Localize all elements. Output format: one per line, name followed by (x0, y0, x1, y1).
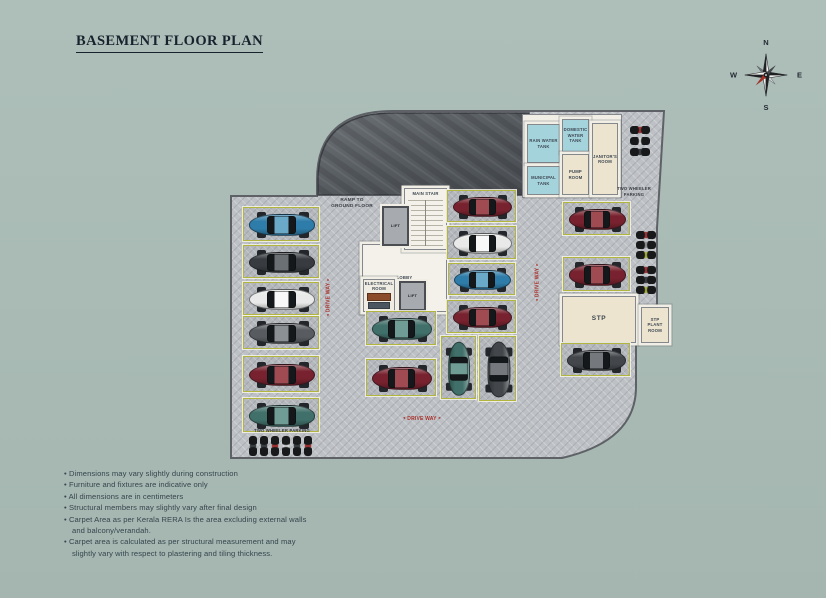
parking-stall (479, 336, 516, 401)
plan-label-two-wheeler-parking: TWO WHEELER PARKING (244, 428, 320, 434)
car-white (249, 289, 314, 309)
car-darkgray (249, 252, 314, 272)
arrow-right-icon: ► (535, 263, 539, 268)
room-stp-plant-room: STP PLANT ROOM (641, 307, 669, 343)
disclaimer-notes: Dimensions may vary slightly during cons… (64, 468, 316, 559)
motorcycle-icon (636, 251, 656, 259)
motorcycle-icon (636, 286, 656, 294)
motorcycle-icon (636, 231, 656, 239)
motorcycle-icon (293, 436, 301, 456)
parking-stall (561, 343, 630, 376)
room-label: LOBBY (397, 275, 413, 280)
arrow-left-icon: ◄ (326, 312, 330, 317)
car-charcoal (567, 350, 626, 370)
parking-stall (366, 311, 436, 345)
motorcycle-icon (630, 126, 650, 134)
room-label: PUMP ROOM (569, 169, 583, 180)
parking-stall (243, 207, 319, 241)
compass-west-label: W (730, 71, 737, 80)
compass-star-icon (742, 51, 790, 99)
room-rain-water-tank: RAIN WATER TANK (527, 124, 560, 163)
car-maroon (453, 307, 512, 327)
motorcycle-icon (636, 266, 656, 274)
room-label: RAIN WATER TANK (529, 138, 557, 149)
note-item: All dimensions are in centimeters (64, 491, 316, 502)
note-item: Furniture and fixtures are indicative on… (64, 479, 316, 490)
car-maroon (569, 264, 627, 285)
parking-stall (243, 245, 319, 278)
plan-label-drive-way: ◄ DRIVE WAY ► (326, 271, 333, 323)
parking-stall (448, 263, 515, 295)
room-pump-room: PUMP ROOM (562, 154, 589, 195)
room-stp: STP (562, 296, 636, 343)
motorcycle-icon (249, 436, 257, 456)
parking-stall (243, 282, 319, 315)
room-electrical-room: ELECTRICAL ROOM (363, 279, 395, 312)
motorcycle-icon (636, 276, 656, 284)
car-teal (372, 318, 432, 339)
plan-label-two-wheeler-parking: TWO WHEELER PARKING (610, 186, 658, 197)
compass-rose: N S W E (731, 40, 801, 110)
room-lift: LIFT (382, 206, 409, 246)
car-charcoal (487, 342, 510, 398)
parking-stall (366, 359, 436, 396)
motorcycle-icon (282, 436, 290, 456)
parking-stall (563, 202, 630, 235)
parking-stall (243, 356, 319, 392)
ramp-texture (318, 113, 529, 195)
notes-list: Dimensions may vary slightly during cons… (64, 468, 316, 559)
room-label: MAIN STAIR (405, 191, 446, 196)
motorcycle-icon (304, 436, 312, 456)
parking-stall (447, 190, 516, 222)
room-lift: LIFT (399, 281, 426, 311)
motorcycle-icon (630, 148, 650, 156)
parking-stall (243, 316, 319, 349)
note-item: Carpet Area as per Kerala RERA Is the ar… (64, 514, 316, 537)
car-gray (249, 323, 314, 343)
room-label: MUNICIPAL TANK (531, 175, 556, 186)
car-maroon (372, 367, 432, 390)
arrow-right-icon: ► (437, 416, 442, 420)
car-maroon (453, 197, 512, 217)
arrow-right-icon: ► (326, 278, 330, 283)
room-label: STP (592, 315, 606, 323)
room-label: DOMESTIC WATER TANK (564, 127, 588, 143)
note-item: Carpet area is calculated as per structu… (64, 536, 316, 559)
arrow-left-icon: ◄ (535, 297, 539, 302)
parking-stall (441, 336, 476, 399)
parking-stall (447, 226, 516, 259)
basement-floor-plan-page: BASEMENT FLOOR PLAN (0, 0, 826, 598)
plan-label-ramp-to-ground-floor: RAMP TO GROUND FLOOR (324, 198, 380, 211)
car-blue (454, 270, 512, 290)
motorcycle-icon (271, 436, 279, 456)
car-blue (249, 214, 314, 235)
car-teal (249, 405, 314, 426)
compass-east-label: E (797, 71, 802, 80)
room-main-stair: MAIN STAIR (404, 188, 447, 250)
plan-label-drive-way: ◄ DRIVE WAY ► (535, 256, 542, 308)
note-item: Dimensions may vary slightly during cons… (64, 468, 316, 479)
room-label: LIFT (391, 223, 400, 228)
car-white (453, 233, 512, 253)
parking-stall (243, 398, 319, 432)
note-item: Structural members may slightly vary aft… (64, 502, 316, 513)
motorcycle-icon (260, 436, 268, 456)
compass-south-label: S (763, 103, 768, 112)
parking-stall (447, 300, 516, 333)
room-municipal-tank: MUNICIPAL TANK (527, 166, 560, 195)
room-janitor-s-room: JANITOR'S ROOM (592, 123, 618, 195)
plan-label-drive-way: ◄ DRIVE WAY ► (396, 416, 448, 423)
parking-stall (563, 257, 630, 291)
room-label: STP PLANT ROOM (648, 317, 663, 333)
room-label: LIFT (408, 293, 417, 298)
room-label: ELECTRICAL ROOM (364, 281, 394, 292)
motorcycle-icon (636, 241, 656, 249)
room-domestic-water-tank: DOMESTIC WATER TANK (562, 119, 589, 152)
car-teal (449, 341, 471, 395)
room-label: JANITOR'S ROOM (593, 154, 617, 165)
compass-north-label: N (763, 38, 768, 47)
car-maroon (249, 364, 314, 386)
arrow-left-icon: ◄ (402, 416, 407, 420)
car-maroon (569, 209, 627, 229)
motorcycle-icon (630, 137, 650, 145)
